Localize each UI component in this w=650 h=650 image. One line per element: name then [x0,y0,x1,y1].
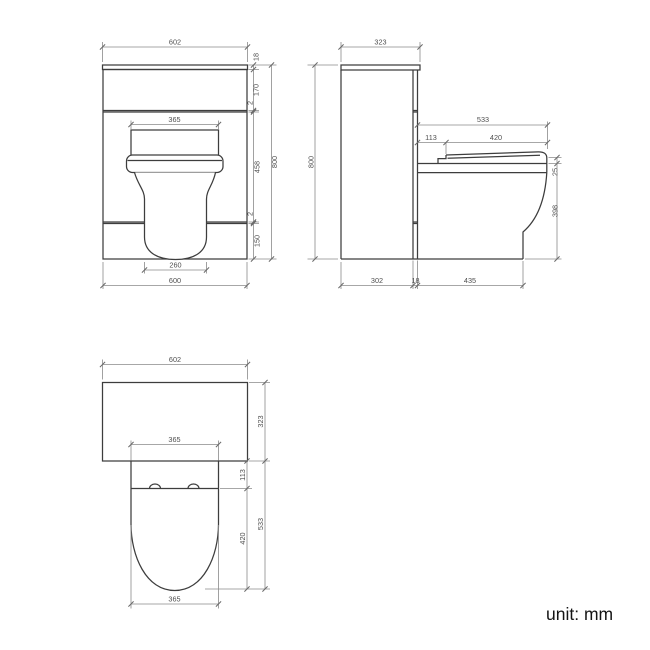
side-seat-hinge [438,155,446,164]
dim-label: 113 [238,469,247,481]
technical-drawing: 602 18 170 2 458 2 150 800 365 260 600 [0,0,650,650]
plan-toilet [131,461,219,591]
side-seat-edge-line [448,155,541,158]
dim-label: 2 [245,101,254,105]
plan-worktop [103,383,248,462]
technical-drawing-page: 602 18 170 2 458 2 150 800 365 260 600 [0,0,650,650]
dim-label: 113 [425,133,437,142]
dim-label: 533 [477,115,489,124]
dim-label: 260 [169,261,181,270]
dim-label: 458 [252,161,261,173]
dim-label: 302 [371,276,383,285]
dim-label: 2 [245,212,254,216]
plan-hinge-bumps [150,484,200,489]
dim-label: 602 [169,38,181,47]
plan-dim-right-inner-line [220,461,252,589]
front-toilet-bowl [135,173,216,260]
side-worktop [341,65,420,70]
plan-view: 602 323 533 113 420 365 365 [100,355,270,609]
front-drawer-gap-lines [103,111,247,113]
side-dim-seat-thickness-line [549,158,562,164]
dim-label: 365 [168,115,180,124]
unit-note: unit: mm [546,604,613,625]
plan-dim-right-outer-line [205,383,270,590]
dim-label: 800 [270,156,279,168]
dim-label: 602 [169,355,181,364]
plan-dimensions: 602 323 533 113 420 365 365 [100,355,270,609]
side-cabinet-body [341,70,523,259]
side-pan-body [418,173,547,259]
dim-label: 25 [550,168,559,176]
dim-label: 365 [168,435,180,444]
dim-label: 323 [256,415,265,427]
dim-label: 150 [252,235,261,247]
dim-label: 170 [251,84,260,96]
dim-label: 800 [306,156,315,168]
side-toilet [418,152,547,259]
dim-label: 435 [464,276,476,285]
front-toilet [127,130,224,260]
dim-label: 533 [256,518,265,530]
dim-label: 18 [411,276,419,285]
dim-label: 365 [168,595,180,604]
dim-label: 420 [238,532,247,544]
dim-label: 398 [550,205,559,217]
front-cistern-panel [131,130,219,157]
front-toilet-seat [127,155,224,173]
dim-label: 18 [251,53,260,61]
dim-label: 600 [169,276,181,285]
side-dim-seat-overall-line [418,122,548,150]
side-elevation-view: 323 800 533 113 420 25 398 302 18 435 [306,38,561,290]
side-dim-bottom-chain-line [341,261,523,290]
dim-label: 323 [374,38,386,47]
side-cabinet [341,65,523,259]
front-elevation-view: 602 18 170 2 458 2 150 800 365 260 600 [100,38,279,290]
front-worktop [103,65,248,70]
plan-seat-outline [131,461,219,591]
plan-cabinet [103,383,248,462]
dim-label: 420 [490,133,502,142]
